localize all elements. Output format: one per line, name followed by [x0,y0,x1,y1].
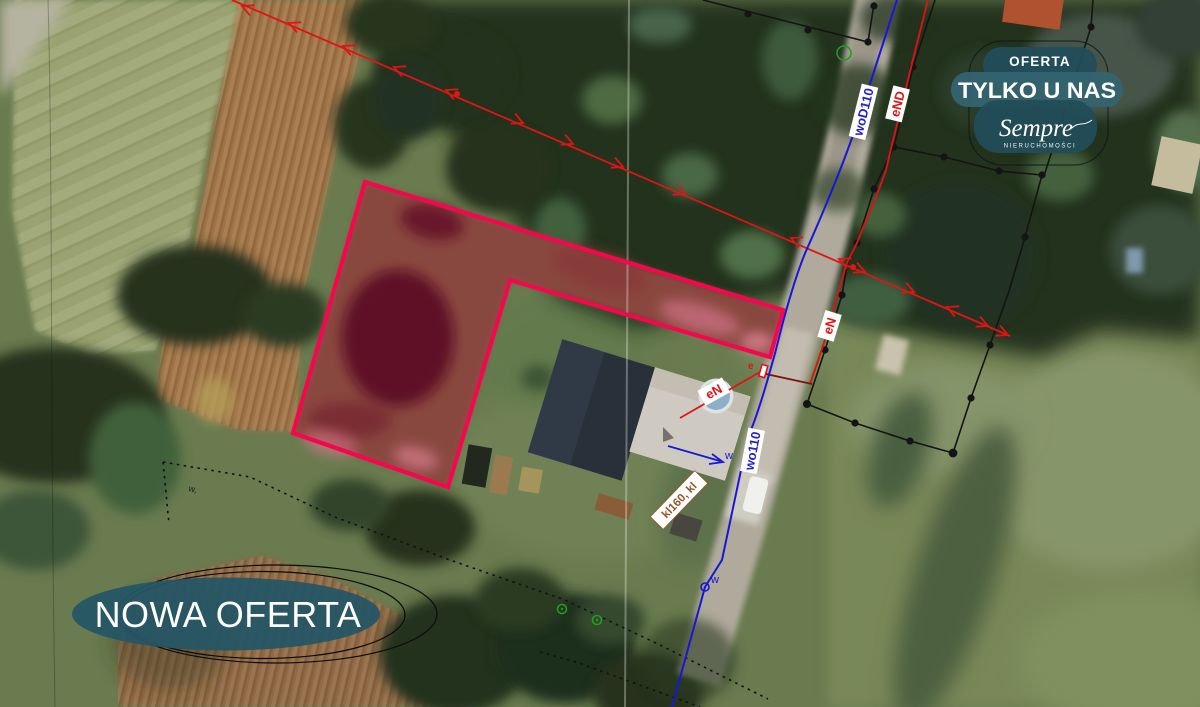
svg-text:NIERUCHOMOŚCI: NIERUCHOMOŚCI [1004,142,1076,150]
svg-text:w: w [724,450,733,462]
svg-text:e: e [748,361,754,372]
svg-text:NOWA OFERTA: NOWA OFERTA [95,594,362,635]
svg-text:Sempre: Sempre [999,115,1073,142]
svg-text:OFERTA: OFERTA [1009,54,1071,69]
svg-text:w: w [710,574,719,586]
svg-text:TYLKO U NAS: TYLKO U NAS [958,78,1116,103]
